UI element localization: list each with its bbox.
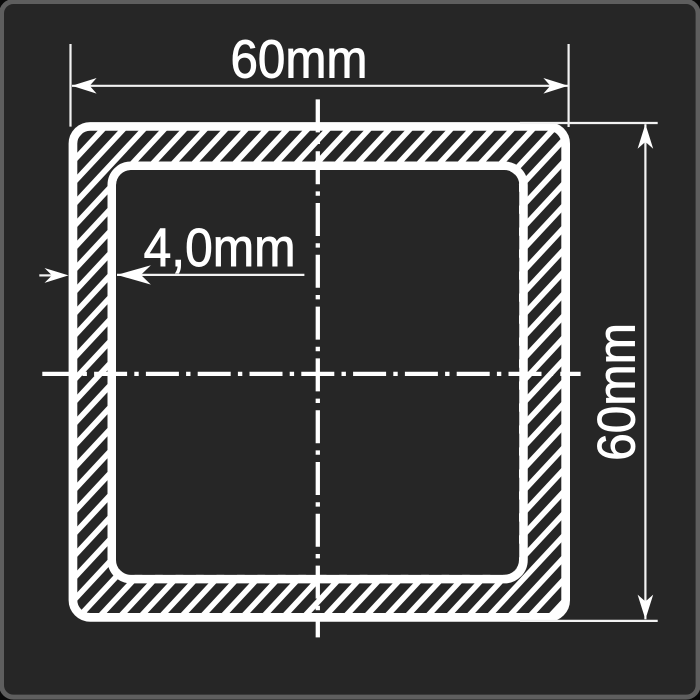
svg-text:4,0mm: 4,0mm (144, 218, 296, 278)
svg-text:60mm: 60mm (588, 323, 647, 461)
svg-text:60mm: 60mm (231, 31, 368, 90)
